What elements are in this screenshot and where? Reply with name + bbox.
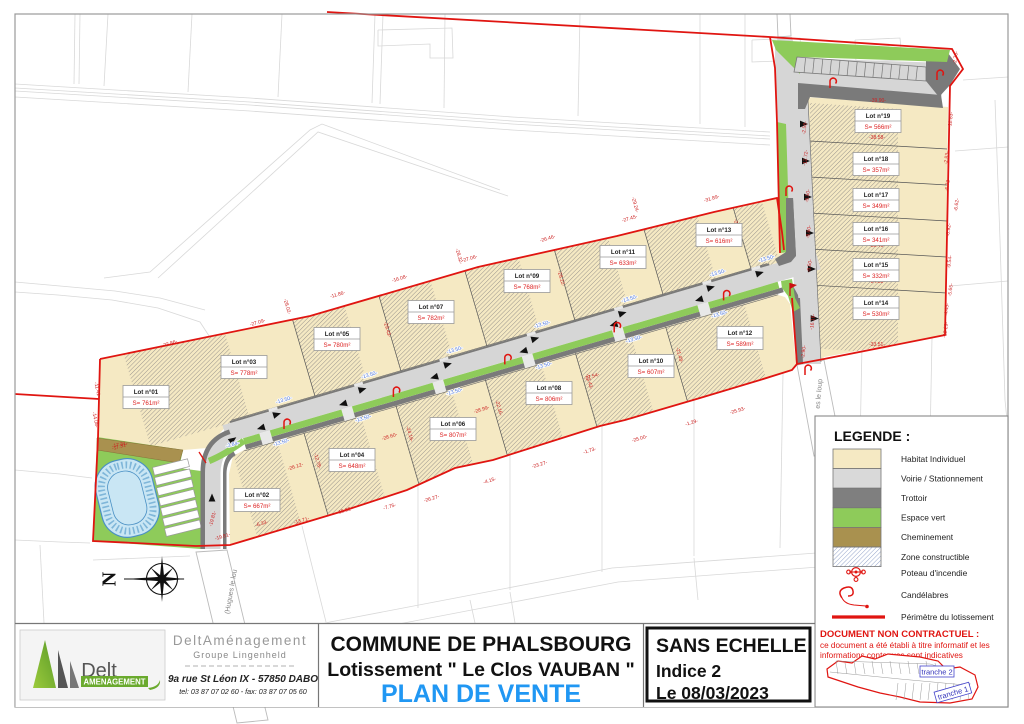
svg-text:S= 589m²: S= 589m² bbox=[727, 341, 754, 348]
svg-text:Lot n°14: Lot n°14 bbox=[864, 300, 889, 307]
svg-text:Indice 2: Indice 2 bbox=[656, 661, 721, 681]
svg-text:Voirie / Stationnement: Voirie / Stationnement bbox=[901, 473, 984, 483]
svg-text:Lot n°07: Lot n°07 bbox=[419, 304, 444, 311]
svg-text:S= 607m²: S= 607m² bbox=[638, 369, 665, 376]
svg-text:Espace vert: Espace vert bbox=[901, 513, 946, 523]
svg-text:-39.90-: -39.90- bbox=[870, 98, 886, 104]
svg-text:Lot n°08: Lot n°08 bbox=[537, 385, 562, 392]
svg-text:Lot n°02: Lot n°02 bbox=[245, 492, 270, 499]
svg-text:Lot n°13: Lot n°13 bbox=[707, 227, 732, 234]
svg-text:N: N bbox=[99, 571, 121, 586]
svg-text:Lot n°16: Lot n°16 bbox=[864, 226, 889, 233]
svg-text:Candélabres: Candélabres bbox=[901, 590, 949, 600]
svg-text:S= 530m²: S= 530m² bbox=[863, 311, 890, 318]
svg-text:S= 566m²: S= 566m² bbox=[865, 124, 892, 131]
svg-text:-38.58-: -38.58- bbox=[869, 135, 885, 141]
svg-text:LEGENDE :: LEGENDE : bbox=[834, 428, 910, 444]
svg-text:S= 782m²: S= 782m² bbox=[418, 315, 445, 322]
svg-text:Lot n°09: Lot n°09 bbox=[515, 273, 540, 280]
svg-text:Poteau d'incendie: Poteau d'incendie bbox=[901, 568, 968, 578]
svg-text:Lot n°05: Lot n°05 bbox=[325, 331, 350, 338]
svg-text:S= 349m²: S= 349m² bbox=[863, 203, 890, 210]
svg-text:S= 357m²: S= 357m² bbox=[863, 167, 890, 174]
svg-text:Lot n°06: Lot n°06 bbox=[441, 421, 466, 428]
svg-text:Le 08/03/2023: Le 08/03/2023 bbox=[656, 683, 769, 703]
svg-text:tranche 2: tranche 2 bbox=[921, 668, 952, 677]
svg-text:Groupe Lingenheld: Groupe Lingenheld bbox=[193, 650, 287, 660]
svg-text:Lot n°03: Lot n°03 bbox=[232, 359, 257, 366]
svg-text:Lot n°17: Lot n°17 bbox=[864, 192, 889, 199]
svg-text:ce document a été établi à tit: ce document a été établi à titre informa… bbox=[820, 641, 990, 650]
svg-text:S= 806m²: S= 806m² bbox=[536, 396, 563, 403]
svg-text:S= 341m²: S= 341m² bbox=[863, 237, 890, 244]
svg-text:DOCUMENT NON CONTRACTUEL :: DOCUMENT NON CONTRACTUEL : bbox=[820, 629, 979, 640]
svg-text:Lot n°01: Lot n°01 bbox=[134, 389, 159, 396]
svg-text:Lot n°19: Lot n°19 bbox=[866, 113, 891, 120]
svg-text:Cheminement: Cheminement bbox=[901, 532, 954, 542]
svg-text:AMENAGEMENT: AMENAGEMENT bbox=[84, 678, 146, 687]
svg-text:9a rue St Léon IX - 57850 DABO: 9a rue St Léon IX - 57850 DABO bbox=[168, 674, 318, 685]
svg-text:Lot n°04: Lot n°04 bbox=[340, 452, 365, 459]
svg-text:S= 332m²: S= 332m² bbox=[863, 273, 890, 280]
svg-text:Lot n°12: Lot n°12 bbox=[728, 330, 753, 337]
svg-text:Trottoir: Trottoir bbox=[901, 493, 927, 503]
svg-text:Zone constructible: Zone constructible bbox=[901, 552, 970, 562]
svg-text:Lotissement " Le Clos VAUBAN ": Lotissement " Le Clos VAUBAN " bbox=[327, 659, 634, 681]
svg-text:SANS ECHELLE: SANS ECHELLE bbox=[656, 635, 807, 657]
svg-text:S= 778m²: S= 778m² bbox=[231, 370, 258, 377]
svg-text:S= 648m²: S= 648m² bbox=[339, 463, 366, 470]
svg-text:Lot n°10: Lot n°10 bbox=[639, 358, 664, 365]
svg-text:COMMUNE DE PHALSBOURG: COMMUNE DE PHALSBOURG bbox=[330, 633, 631, 656]
svg-text:tel: 03 87 07 02 60 - fax: 03: tel: 03 87 07 02 60 - fax: 03 87 07 05 6… bbox=[179, 687, 306, 696]
svg-text:S= 633m²: S= 633m² bbox=[610, 260, 637, 267]
svg-text:S= 768m²: S= 768m² bbox=[514, 284, 541, 291]
svg-text:DeltAménagement: DeltAménagement bbox=[173, 633, 307, 648]
svg-text:S= 616m²: S= 616m² bbox=[706, 238, 733, 245]
svg-text:Lot n°18: Lot n°18 bbox=[864, 156, 889, 163]
svg-text:Lot n°11: Lot n°11 bbox=[611, 249, 636, 256]
svg-text:Périmètre du lotissement: Périmètre du lotissement bbox=[901, 612, 994, 622]
svg-text:-33.51-: -33.51- bbox=[869, 342, 885, 348]
svg-text:S= 807m²: S= 807m² bbox=[440, 432, 467, 439]
svg-text:PLAN DE VENTE: PLAN DE VENTE bbox=[381, 680, 581, 708]
svg-text:Lot n°15: Lot n°15 bbox=[864, 262, 889, 269]
svg-text:S= 761m²: S= 761m² bbox=[133, 400, 160, 407]
svg-text:S= 780m²: S= 780m² bbox=[324, 342, 351, 349]
svg-text:S= 667m²: S= 667m² bbox=[244, 503, 271, 510]
svg-text:Habitat Individuel: Habitat Individuel bbox=[901, 454, 965, 464]
